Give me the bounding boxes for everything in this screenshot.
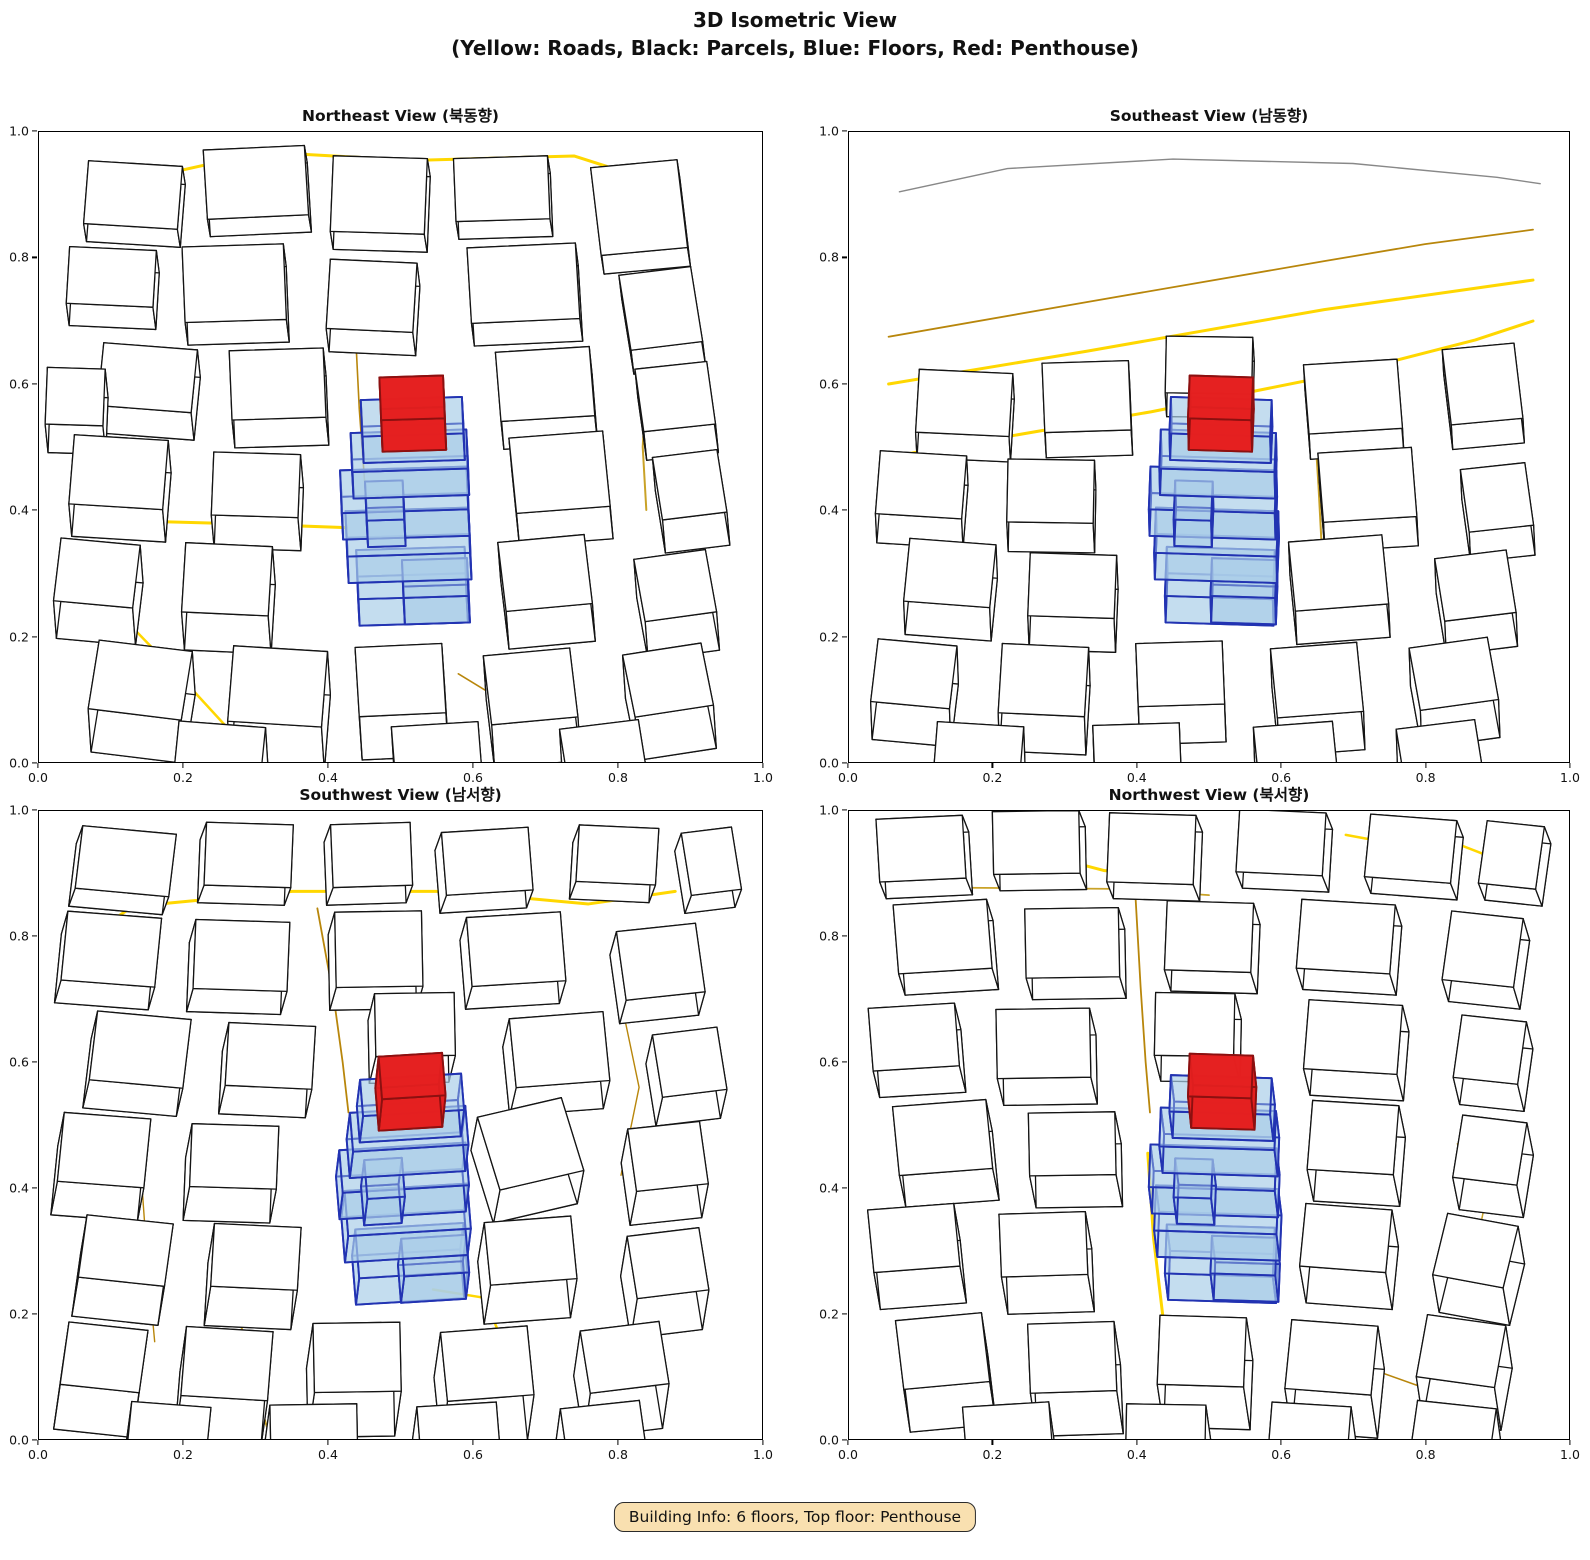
x-tick-mark [472, 1440, 473, 1445]
plot-area-southeast [848, 131, 1570, 763]
y-tick-mark [32, 1061, 37, 1062]
y-tick-label: 1.0 [9, 803, 29, 818]
scene-polygon [634, 550, 717, 622]
scene-polygon [1093, 723, 1181, 762]
scene-southwest-svg [39, 811, 762, 1439]
scene-polygon [1396, 720, 1482, 762]
x-tick-mark [992, 1440, 993, 1445]
scene-polygon [1285, 1320, 1378, 1395]
y-tick-label: 0.2 [9, 629, 29, 644]
y-tick-mark [32, 1439, 37, 1440]
y-tick-label: 1.0 [819, 803, 839, 818]
scene-polygon [441, 827, 533, 895]
scene-polygon [1433, 1213, 1518, 1287]
scene-polygon [327, 885, 413, 905]
scene-polygon [1300, 1204, 1392, 1273]
scene-polygon [681, 827, 741, 895]
y-tick-label: 0.8 [819, 929, 839, 944]
x-tick-mark [1136, 763, 1137, 768]
x-tick-mark [1281, 763, 1282, 768]
y-tick-label: 0.0 [819, 756, 839, 771]
scene-polygon [1026, 977, 1126, 1000]
y-tick-mark [842, 1061, 847, 1062]
scene-polygon [498, 535, 593, 612]
scene-polygon [576, 825, 659, 885]
y-tick-mark [32, 1187, 37, 1188]
scene-polygon [623, 643, 714, 717]
figure-title: 3D Isometric View (Yellow: Roads, Black:… [0, 6, 1590, 62]
scene-polygon [1269, 1402, 1352, 1439]
scene-polygon [203, 145, 308, 219]
scene-polygon [379, 1053, 446, 1099]
scene-polygon [174, 721, 266, 762]
y-tick-label: 0.4 [819, 503, 839, 518]
x-tick-mark [1425, 1440, 1426, 1445]
scene-polygon [352, 469, 469, 499]
scene-polygon [204, 1286, 297, 1329]
y-tick-mark [32, 510, 37, 511]
scene-polygon [652, 1027, 726, 1097]
scene-polygon [88, 640, 192, 720]
x-tick-mark [327, 763, 328, 768]
scene-polygon [54, 1384, 139, 1437]
scene-polygon [84, 161, 183, 230]
scene-polygon [229, 348, 326, 420]
x-tick-label: 0.6 [463, 1447, 483, 1462]
x-tick-mark [37, 1440, 38, 1445]
scene-polygon [364, 1197, 405, 1226]
scene-polygon [198, 885, 291, 905]
scene-polygon [182, 244, 286, 323]
x-tick-label: 0.0 [28, 1447, 48, 1462]
scene-polygon [326, 259, 417, 332]
x-tick-mark [1569, 763, 1570, 768]
scene-polygon [1253, 721, 1337, 762]
scene-polygon [57, 1112, 150, 1187]
x-tick-mark [182, 1440, 183, 1445]
scene-polygon [1409, 637, 1498, 710]
scene-polygon [182, 543, 273, 616]
scene-polygon [1416, 1315, 1505, 1388]
scene-polygon [635, 362, 716, 432]
x-tick-label: 0.4 [318, 1447, 338, 1462]
scene-polygon [441, 1326, 534, 1401]
x-tick-label: 0.6 [1271, 1447, 1291, 1462]
scene-polygon [484, 1216, 577, 1285]
scene-polygon [181, 1327, 273, 1401]
scene-polygon [1307, 1169, 1400, 1206]
y-tick-label: 0.8 [9, 250, 29, 265]
x-tick-mark [327, 1440, 328, 1445]
scene-polygon [1030, 1175, 1123, 1208]
scene-polygon [403, 596, 469, 624]
subplot-title-southeast: Southeast View (남동향) [848, 104, 1570, 126]
scene-polygon [1159, 1146, 1277, 1176]
figure-canvas: 3D Isometric View (Yellow: Roads, Black:… [0, 0, 1590, 1560]
scene-polygon [1188, 1054, 1253, 1099]
scene-polygon [219, 1085, 312, 1117]
x-tick-label: 1.0 [1560, 1447, 1580, 1462]
y-tick-label: 0.2 [819, 1307, 839, 1322]
scene-polygon [330, 156, 427, 234]
y-tick-label: 0.4 [819, 1181, 839, 1196]
scene-polygon [193, 920, 290, 992]
scene-northwest-svg [849, 811, 1569, 1439]
scene-polygon [453, 156, 549, 222]
scene-polygon [270, 1404, 358, 1439]
y-tick-label: 0.2 [819, 629, 839, 644]
x-tick-label: 0.2 [982, 1447, 1002, 1462]
scene-polygon [367, 520, 406, 548]
y-tick-mark [32, 935, 37, 936]
scene-polygon [467, 243, 580, 323]
y-tick-label: 1.0 [819, 124, 839, 139]
scene-polygon [1028, 1322, 1117, 1394]
scene-polygon [228, 646, 328, 727]
scene-polygon [652, 450, 726, 520]
scene-polygon [355, 643, 446, 716]
building-info-badge: Building Info: 6 floors, Top floor: Pent… [614, 1502, 976, 1532]
y-tick-label: 0.6 [9, 1055, 29, 1070]
scene-polygon [1001, 1274, 1094, 1314]
scene-polygon [1442, 343, 1523, 425]
scene-polygon [185, 319, 289, 345]
scene-polygon [1136, 641, 1225, 707]
scene-polygon [211, 1224, 301, 1291]
subplot-title-southwest: Southwest View (남서향) [38, 783, 763, 805]
scene-polygon [874, 1266, 967, 1309]
scene-polygon [225, 1023, 315, 1090]
scene-polygon [1304, 359, 1403, 434]
scene-polygon [1236, 811, 1326, 876]
scene-polygon [1460, 463, 1533, 532]
y-tick-mark [32, 257, 37, 258]
scene-polygon [381, 418, 446, 451]
scene-polygon [999, 1212, 1088, 1277]
scene-polygon [560, 1400, 645, 1439]
y-tick-mark [842, 510, 847, 511]
scene-polygon [54, 538, 141, 608]
scene-polygon [190, 1124, 279, 1189]
scene-polygon [1028, 1112, 1116, 1176]
x-tick-mark [617, 1440, 618, 1445]
y-tick-label: 0.8 [819, 250, 839, 265]
y-tick-mark [842, 383, 847, 384]
scene-polygon [1453, 1115, 1527, 1185]
scene-polygon [1289, 535, 1389, 611]
scene-polygon [331, 822, 413, 887]
x-tick-label: 0.2 [173, 1447, 193, 1462]
plot-area-southwest [38, 810, 763, 1440]
figure-title-line2: (Yellow: Roads, Black: Parcels, Blue: Fl… [0, 34, 1590, 62]
y-tick-label: 0.6 [819, 1055, 839, 1070]
subplot-southeast: Southeast View (남동향) 0.00.00.20.20.40.40… [848, 131, 1570, 763]
y-tick-mark [32, 809, 37, 810]
y-tick-label: 0.6 [819, 376, 839, 391]
x-tick-mark [1136, 1440, 1137, 1445]
scene-polygon [1174, 520, 1212, 548]
scene-polygon [992, 811, 1080, 874]
x-tick-label: 0.0 [838, 1447, 858, 1462]
scene-polygon [509, 1012, 609, 1088]
scene-polygon [934, 722, 1024, 762]
plot-area-northeast [38, 131, 763, 763]
scene-polygon [1154, 992, 1234, 1056]
scene-polygon [375, 992, 456, 1056]
x-tick-label: 1.0 [753, 1447, 773, 1462]
scene-polygon [963, 1402, 1053, 1439]
road-line [1136, 898, 1150, 1113]
scene-polygon [1154, 553, 1277, 583]
scene-polygon [347, 553, 471, 583]
scene-polygon [313, 1322, 401, 1392]
scene-polygon [904, 538, 996, 607]
scene-polygon [1478, 821, 1544, 889]
scene-polygon [1154, 1231, 1280, 1261]
scene-polygon [997, 1077, 1097, 1105]
scene-polygon [1364, 814, 1456, 883]
x-tick-mark [847, 1440, 848, 1445]
scene-polygon [1296, 899, 1395, 974]
y-tick-mark [842, 809, 847, 810]
scene-polygon [868, 1204, 960, 1273]
scene-polygon [204, 822, 293, 887]
x-tick-mark [472, 763, 473, 768]
y-tick-mark [842, 935, 847, 936]
scene-polygon [619, 267, 703, 351]
scene-polygon [78, 1215, 173, 1286]
scene-polygon [1157, 1315, 1246, 1387]
scene-polygon [232, 417, 329, 448]
y-tick-label: 0.4 [9, 1181, 29, 1196]
scene-polygon [1007, 459, 1095, 523]
subplot-title-northeast: Northeast View (북동향) [38, 104, 763, 126]
scene-polygon [580, 1321, 669, 1393]
scene-polygon [627, 1228, 709, 1299]
scene-polygon [127, 1402, 211, 1439]
scene-polygon [1028, 553, 1117, 619]
scene-polygon [61, 911, 161, 987]
scene-polygon [1025, 908, 1120, 978]
y-tick-mark [842, 762, 847, 763]
road-line [889, 230, 1533, 337]
scene-polygon [69, 435, 168, 510]
scene-polygon [1210, 596, 1275, 624]
y-tick-label: 1.0 [9, 124, 29, 139]
scene-polygon [483, 648, 578, 725]
x-tick-mark [1569, 1440, 1570, 1445]
scene-polygon [1435, 550, 1516, 621]
road-line [899, 159, 1540, 192]
scene-polygon [896, 1313, 990, 1390]
x-tick-mark [1425, 763, 1426, 768]
figure-title-line1: 3D Isometric View [0, 6, 1590, 34]
scene-polygon [1107, 813, 1196, 885]
y-tick-mark [842, 1439, 847, 1440]
x-tick-mark [37, 763, 38, 768]
scene-polygon [893, 1100, 993, 1176]
y-tick-mark [32, 762, 37, 763]
x-tick-label: 0.8 [1416, 1447, 1436, 1462]
y-tick-label: 0.0 [819, 1433, 839, 1448]
scene-polygon [335, 911, 423, 988]
scene-polygon [875, 451, 966, 519]
y-tick-mark [842, 257, 847, 258]
scene-polygon [66, 247, 156, 308]
scene-polygon [998, 643, 1088, 716]
y-tick-mark [32, 1313, 37, 1314]
scene-polygon [996, 1008, 1091, 1078]
plot-area-northwest [848, 810, 1570, 1440]
scene-polygon [1164, 970, 1257, 994]
subplot-southwest: Southwest View (남서향) 0.00.00.20.20.40.40… [38, 810, 763, 1440]
x-tick-mark [992, 763, 993, 768]
scene-polygon [1042, 361, 1131, 433]
subplot-northeast: Northeast View (북동향) 0.00.00.20.20.40.40… [38, 131, 763, 763]
scene-polygon [1453, 1015, 1526, 1084]
scene-polygon [509, 431, 610, 513]
scene-polygon [1318, 447, 1417, 522]
scene-polygon [871, 639, 957, 709]
x-tick-mark [182, 763, 183, 768]
scene-polygon [1270, 642, 1363, 718]
x-tick-mark [847, 763, 848, 768]
scene-polygon [183, 1186, 276, 1223]
y-tick-label: 0.0 [9, 1433, 29, 1448]
subplot-northwest: Northwest View (북서향) 0.00.00.20.20.40.40… [848, 810, 1570, 1440]
scene-polygon [89, 1011, 191, 1088]
y-tick-mark [32, 130, 37, 131]
y-tick-mark [842, 1313, 847, 1314]
x-tick-mark [762, 763, 763, 768]
y-tick-mark [842, 1187, 847, 1188]
x-tick-mark [762, 1440, 763, 1445]
scene-polygon [876, 815, 966, 882]
y-tick-label: 0.4 [9, 503, 29, 518]
x-tick-mark [617, 763, 618, 768]
scene-polygon [495, 347, 594, 422]
y-tick-label: 0.2 [9, 1307, 29, 1322]
scene-polygon [401, 1272, 469, 1302]
scene-polygon [1442, 911, 1523, 987]
y-tick-label: 0.0 [9, 756, 29, 771]
scene-polygon [391, 722, 482, 762]
scene-polygon [69, 504, 166, 542]
scene-polygon [417, 1402, 500, 1439]
scene-southeast-svg [849, 132, 1569, 762]
scene-polygon [868, 1003, 959, 1071]
y-tick-mark [32, 383, 37, 384]
scene-polygon [628, 1121, 709, 1191]
scene-polygon [1307, 1100, 1399, 1174]
scene-polygon [1007, 522, 1095, 553]
scene-polygon [1159, 469, 1275, 499]
scene-polygon [616, 923, 705, 1000]
y-tick-mark [32, 636, 37, 637]
y-tick-mark [842, 130, 847, 131]
scene-polygon [591, 160, 688, 256]
scene-polygon [1188, 375, 1253, 420]
scene-polygon [75, 826, 176, 897]
scene-polygon [1188, 1096, 1255, 1129]
scene-polygon [211, 452, 300, 518]
subplot-title-northwest: Northwest View (북서향) [848, 783, 1570, 805]
scene-polygon [45, 367, 105, 425]
y-tick-label: 0.6 [9, 376, 29, 391]
scene-polygon [484, 1279, 577, 1325]
scene-polygon [1210, 1273, 1278, 1301]
scene-polygon [456, 219, 553, 240]
scene-northeast-svg [39, 132, 762, 762]
scene-polygon [893, 899, 992, 974]
scene-polygon [1304, 1000, 1403, 1075]
scene-polygon [1174, 1197, 1215, 1225]
scene-polygon [60, 1322, 148, 1393]
scene-polygon [97, 343, 197, 413]
y-tick-mark [842, 636, 847, 637]
x-tick-label: 0.8 [608, 1447, 628, 1462]
scene-polygon [1188, 418, 1252, 451]
scene-polygon [916, 369, 1013, 436]
scene-polygon [1126, 1404, 1206, 1439]
scene-polygon [1164, 901, 1253, 973]
scene-polygon [379, 375, 444, 420]
scene-polygon [1045, 430, 1133, 458]
scene-polygon [994, 873, 1087, 891]
x-tick-label: 0.4 [1127, 1447, 1147, 1462]
scene-polygon [467, 912, 566, 987]
x-tick-mark [1281, 1440, 1282, 1445]
scene-polygon [187, 989, 287, 1015]
y-tick-label: 0.8 [9, 929, 29, 944]
scene-polygon [379, 1095, 446, 1130]
